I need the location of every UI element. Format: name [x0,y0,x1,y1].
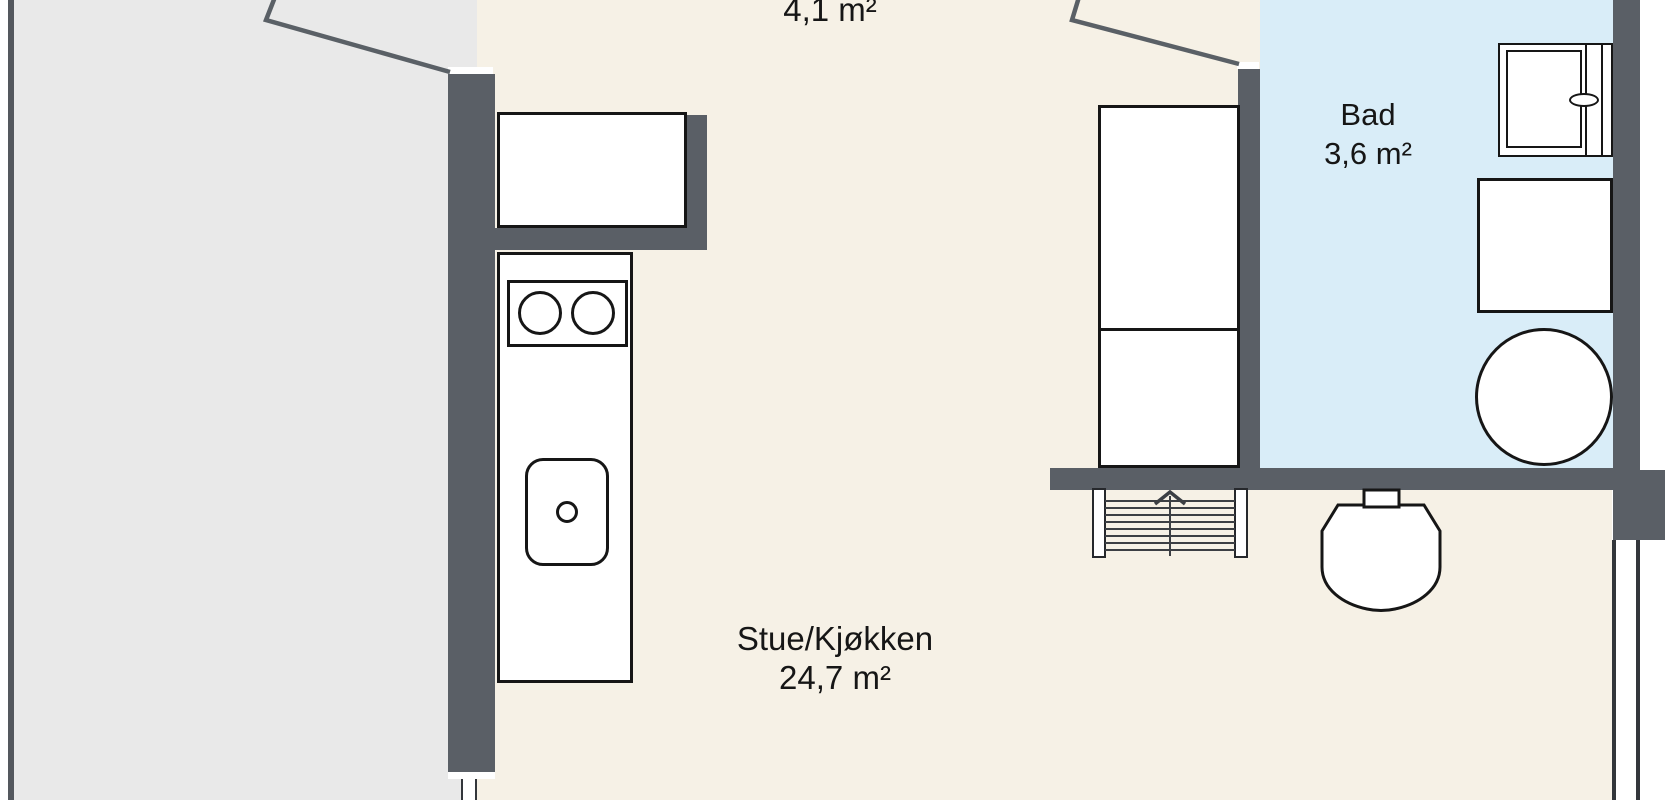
wall-bathroom-left [1238,69,1260,470]
living-room-name: Stue/Kjøkken [737,620,933,659]
threshold-entry-door [448,67,493,74]
wall-left [448,74,495,772]
terrace-area [8,0,477,800]
wall-right [1613,0,1640,470]
bathroom-area-value: 3,6 m² [1324,135,1412,174]
hall-area-value: 4,1 m² [783,0,877,29]
wardrobe-icon [1098,105,1240,468]
kitchen-sink-icon [525,458,609,566]
wall-kitchen-stub-vertical [687,115,707,228]
washing-machine-icon [1475,328,1613,466]
threshold-left-bottom [448,772,495,779]
bathroom-label: Bad 3,6 m² [1324,96,1412,174]
refrigerator-icon [497,112,687,228]
burner-icon [571,291,615,335]
threshold-bath-door [1237,62,1259,69]
living-room-label: Stue/Kjøkken 24,7 m² [737,620,933,698]
cooktop-icon [507,280,628,347]
shower-cabinet-icon [1477,178,1613,313]
living-room-area-value: 24,7 m² [737,659,933,698]
floorplan-canvas: 4,1 m² Bad 3,6 m² Stue/Kjøkken 24,7 m² [0,0,1670,800]
vanity-divider [1601,45,1603,155]
faucet-handle-icon [1569,93,1599,107]
sink-drain-icon [556,501,578,523]
wall-kitchen-stub-horizontal [493,228,707,250]
wardrobe-divider [1101,328,1237,331]
door-frame-bottom-icon [461,779,477,800]
wall-bathroom-bottom [1050,468,1613,490]
bathroom-vanity-icon [1498,43,1613,157]
window-right-icon [1612,540,1640,800]
bathroom-name: Bad [1324,96,1412,135]
wall-right-corner [1613,470,1665,540]
burner-icon [518,291,562,335]
hall-area-label: 4,1 m² [783,0,877,29]
